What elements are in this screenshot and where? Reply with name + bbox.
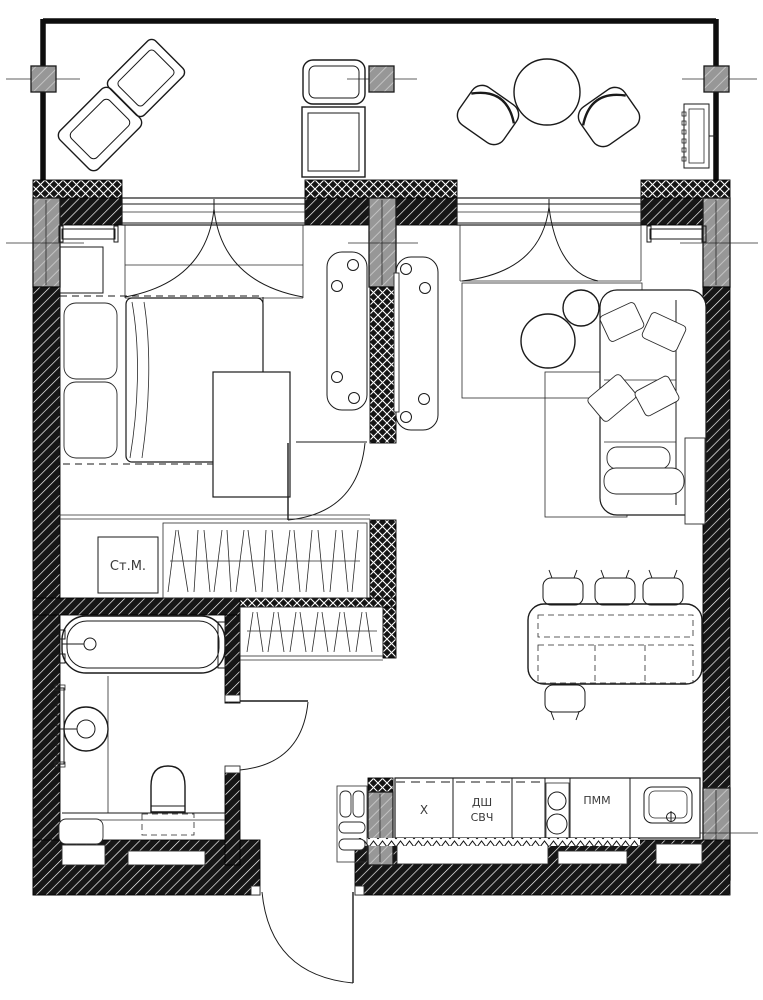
pillow — [64, 303, 117, 379]
dining-chair — [543, 570, 583, 605]
shoe — [353, 791, 364, 817]
kitchen: Х ДШ СВЧ ПММ — [357, 778, 700, 846]
wall-niche — [62, 845, 105, 865]
dining-chair — [643, 570, 683, 605]
coffee-table-small — [563, 290, 599, 326]
balcony-railing — [43, 19, 716, 181]
wall-left — [33, 287, 60, 895]
vanity-cabinet — [59, 819, 103, 844]
floor-plan-drawing: Ст.М. — [0, 0, 763, 1000]
lounge-chair-2 — [55, 84, 144, 173]
dining-area — [528, 570, 702, 720]
wardrobe-hanging — [163, 523, 367, 598]
wall-niche — [558, 851, 627, 864]
dining-table — [528, 604, 702, 684]
bathtub-drain — [84, 638, 96, 650]
living-room — [460, 199, 706, 524]
lounge-chair-1 — [105, 37, 187, 119]
sink — [60, 707, 108, 751]
kitchen-pier-column — [368, 792, 393, 865]
fridge-label: Х — [420, 803, 428, 817]
wall-console — [685, 438, 705, 524]
bathroom-right-wall — [225, 615, 240, 703]
wall-panel-bedroom-side — [327, 252, 367, 410]
oven-label: ДШ — [472, 796, 492, 809]
sofa-bolster — [607, 447, 670, 469]
balcony-column-left — [31, 66, 56, 92]
insulation-band — [641, 180, 730, 198]
balcony-armchair-left — [453, 81, 524, 150]
wall-tv — [394, 273, 399, 412]
bathroom-top-wall — [33, 598, 240, 615]
door-swing — [288, 443, 365, 520]
floor-plan-page: Ст.М. — [0, 0, 763, 1000]
partition-wall — [370, 287, 396, 443]
balcony-radiator — [682, 104, 716, 168]
entry-hall — [262, 786, 367, 983]
balcony-round-table — [514, 59, 580, 125]
column-top-right — [703, 198, 730, 287]
microwave-label: СВЧ — [471, 811, 494, 824]
shoe — [340, 791, 351, 817]
wall-niche — [656, 844, 702, 864]
wall-pier — [60, 198, 122, 225]
dishwasher-label: ПММ — [583, 794, 610, 807]
dining-chair — [545, 685, 585, 720]
insulation-band — [33, 180, 122, 198]
washing-machine: Ст.М. — [98, 537, 158, 593]
kitchen-pier-insulation — [368, 778, 393, 792]
bedroom-closet: Ст.М. — [60, 515, 370, 598]
facade-wall — [6, 180, 758, 287]
hall-closet — [240, 607, 383, 660]
sofa-bolster — [604, 468, 684, 494]
wall-niche — [128, 851, 205, 865]
nightstand — [60, 247, 103, 293]
washing-machine-label: Ст.М. — [110, 559, 146, 574]
balcony — [6, 19, 757, 181]
entry-door-jamb — [355, 886, 364, 895]
hanger-strokes — [247, 612, 372, 652]
wall-panel-living-side — [396, 257, 438, 430]
bathroom-right-wall — [225, 770, 240, 865]
coffee-table-large — [521, 314, 575, 368]
entry-door — [262, 892, 353, 983]
entry-door-jamb — [251, 886, 260, 895]
bathtub — [59, 616, 225, 673]
closet-pier — [383, 607, 396, 658]
balcony-armchair-right — [574, 83, 645, 152]
bedroom — [59, 199, 367, 520]
bathroom-door-jamb — [225, 695, 240, 702]
toilet — [142, 766, 194, 835]
partition-pier — [370, 520, 396, 607]
cistern-box — [142, 814, 194, 835]
bathroom — [55, 616, 308, 844]
door-swing — [262, 892, 353, 983]
pillow — [64, 382, 117, 458]
closet-divider-wall — [240, 598, 396, 607]
wall-pier — [641, 198, 703, 225]
door-swing — [240, 702, 308, 770]
shoe — [339, 822, 365, 833]
dining-chair — [595, 570, 635, 605]
bedroom-door — [288, 442, 367, 520]
radiator — [59, 226, 118, 242]
wall-pier — [396, 198, 457, 225]
wall-pier — [305, 198, 370, 225]
balcony-table-square — [302, 107, 365, 177]
balcony-column-right — [704, 66, 729, 92]
column-top-middle — [369, 198, 396, 287]
balcony-column-middle — [369, 66, 394, 92]
insulation-band — [305, 180, 457, 198]
balcony-chair — [303, 60, 365, 104]
column-top-left — [33, 198, 60, 287]
bedside-bench — [213, 372, 290, 497]
counter-plinth-zigzag — [357, 838, 640, 846]
wall-right — [703, 287, 730, 788]
bathroom-door-jamb — [225, 766, 240, 773]
shoe — [339, 839, 365, 850]
radiator — [647, 226, 706, 242]
wall-niche — [397, 844, 548, 864]
bathroom-door — [240, 701, 308, 770]
